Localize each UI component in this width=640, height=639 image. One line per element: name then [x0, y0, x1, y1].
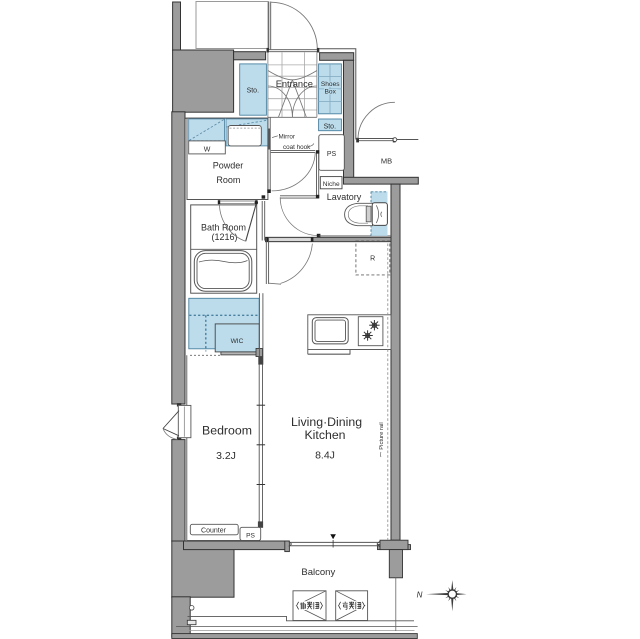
svg-text:WIC: WIC: [231, 338, 244, 345]
svg-text:Lavatory: Lavatory: [327, 192, 362, 202]
svg-text:coat hook: coat hook: [283, 144, 311, 151]
svg-text:Bath Room: Bath Room: [201, 222, 246, 232]
svg-text:Box: Box: [325, 89, 337, 96]
svg-text:Powder: Powder: [213, 161, 244, 171]
svg-text:Shoes: Shoes: [321, 81, 340, 88]
svg-text:PS: PS: [246, 532, 255, 539]
svg-text:Bedroom: Bedroom: [202, 423, 252, 437]
svg-text:(1216): (1216): [211, 232, 237, 242]
svg-text:Balcony: Balcony: [301, 567, 335, 578]
svg-text:Counter: Counter: [201, 528, 227, 535]
svg-text:W: W: [204, 146, 211, 153]
svg-text:3.2J: 3.2J: [216, 450, 236, 462]
svg-text:Kitchen: Kitchen: [304, 428, 345, 442]
svg-text:R: R: [370, 256, 375, 263]
svg-text:8.4J: 8.4J: [315, 450, 335, 462]
svg-text:Picture rail: Picture rail: [379, 422, 385, 449]
svg-text:Sto.: Sto.: [324, 123, 337, 130]
svg-text:Sto.: Sto.: [247, 88, 260, 95]
svg-text:Room: Room: [216, 175, 240, 185]
svg-text:Mirror: Mirror: [279, 133, 295, 140]
svg-text:PS: PS: [327, 151, 337, 158]
svg-text:N: N: [417, 590, 423, 599]
svg-text:MB: MB: [381, 157, 392, 166]
svg-text:Living·Dining: Living·Dining: [291, 415, 362, 429]
svg-text:Niche: Niche: [323, 181, 340, 188]
svg-text:Entrance: Entrance: [276, 79, 313, 89]
